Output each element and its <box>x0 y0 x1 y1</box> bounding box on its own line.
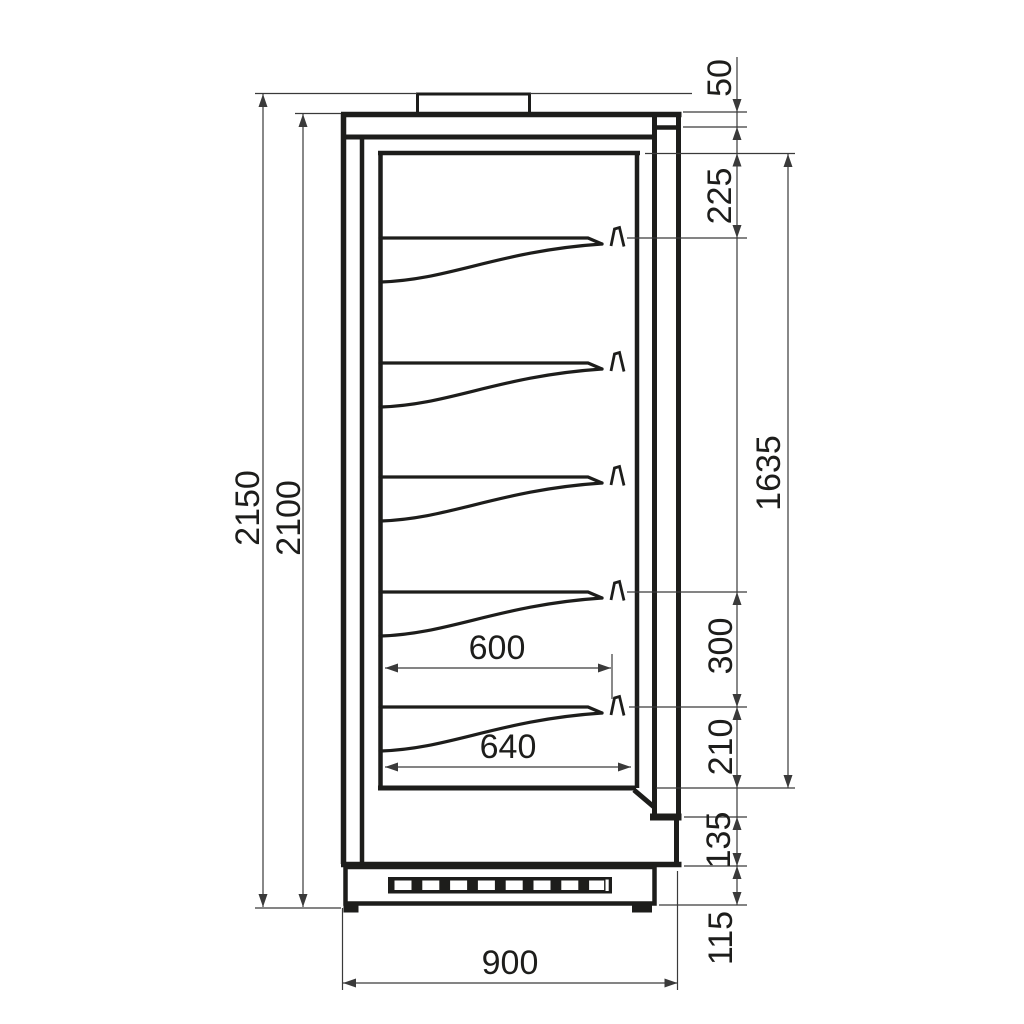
price-tag-strip <box>611 353 624 372</box>
shelf-top-line <box>380 363 602 369</box>
shelf-top-line <box>380 477 602 483</box>
grille-slot <box>506 881 523 891</box>
front-foot <box>632 905 652 913</box>
grille-slot <box>534 881 551 891</box>
grille-slot <box>589 881 604 891</box>
dim-chain-right: 50 225 300 210 135 115 <box>700 57 742 965</box>
dim-label-top-to-first-shelf: 225 <box>701 168 739 225</box>
shelf-top-line <box>380 707 602 713</box>
dim-cabinet-height: 2100 <box>270 114 308 908</box>
dim-label-overall-height: 2150 <box>229 470 267 546</box>
roof-top-box <box>418 94 530 114</box>
shelf-top-line <box>380 238 602 244</box>
dim-label-bottom-shelf-clearance: 210 <box>702 719 740 776</box>
cabinet-side-section-drawing: 2150 2100 50 225 300 210 135 115 1635 <box>0 0 1024 1024</box>
dim-overall-depth: 900 <box>343 944 678 988</box>
dim-label-cabinet-height: 2100 <box>270 480 308 556</box>
shelf-1 <box>380 228 624 283</box>
dim-bottom-shelf-depth: 640 <box>385 728 631 772</box>
shelf-4 <box>380 582 624 637</box>
ventilation-grille <box>388 877 612 894</box>
dim-label-plinth-height: 115 <box>702 911 740 965</box>
cabinet-structure <box>341 94 682 913</box>
dim-label-shelf-depth: 600 <box>469 629 526 667</box>
dim-shelf-depth: 600 <box>385 629 611 673</box>
grille-slot <box>561 881 578 891</box>
dim-label-interior-height: 1635 <box>750 435 788 511</box>
glass-door <box>650 114 682 864</box>
shelf-top-line <box>380 592 602 598</box>
shelf-bracket-curve <box>380 244 602 282</box>
dim-interior-height: 1635 <box>750 154 793 789</box>
grille-slot <box>450 881 467 891</box>
shelf-bracket-curve <box>380 369 602 407</box>
shelf-2 <box>380 353 624 408</box>
dim-label-base-front-height: 135 <box>700 812 738 869</box>
rear-foot <box>344 905 359 913</box>
price-tag-strip <box>611 228 624 247</box>
grille-slot-end <box>606 880 609 892</box>
dim-label-shelf-spacing: 300 <box>702 618 740 675</box>
price-tag-strip <box>611 697 624 716</box>
drawing-canvas: 2150 2100 50 225 300 210 135 115 1635 <box>0 0 1024 1024</box>
dim-overall-height: 2150 <box>229 94 268 908</box>
grille-slot <box>395 881 412 891</box>
shelf-3 <box>380 467 624 522</box>
dim-label-bottom-shelf-depth: 640 <box>480 728 537 766</box>
grille-slot <box>422 881 439 891</box>
dim-label-canopy-front: 50 <box>701 59 739 97</box>
liner-floor-front-chamfer <box>634 790 654 807</box>
shelf-bracket-curve <box>380 483 602 521</box>
grille-slot <box>478 881 495 891</box>
dimension-annotations: 2150 2100 50 225 300 210 135 115 1635 <box>229 57 795 990</box>
grille-bar <box>388 877 612 894</box>
price-tag-strip <box>611 467 624 486</box>
dim-label-overall-depth: 900 <box>482 944 539 982</box>
price-tag-strip <box>611 582 624 601</box>
